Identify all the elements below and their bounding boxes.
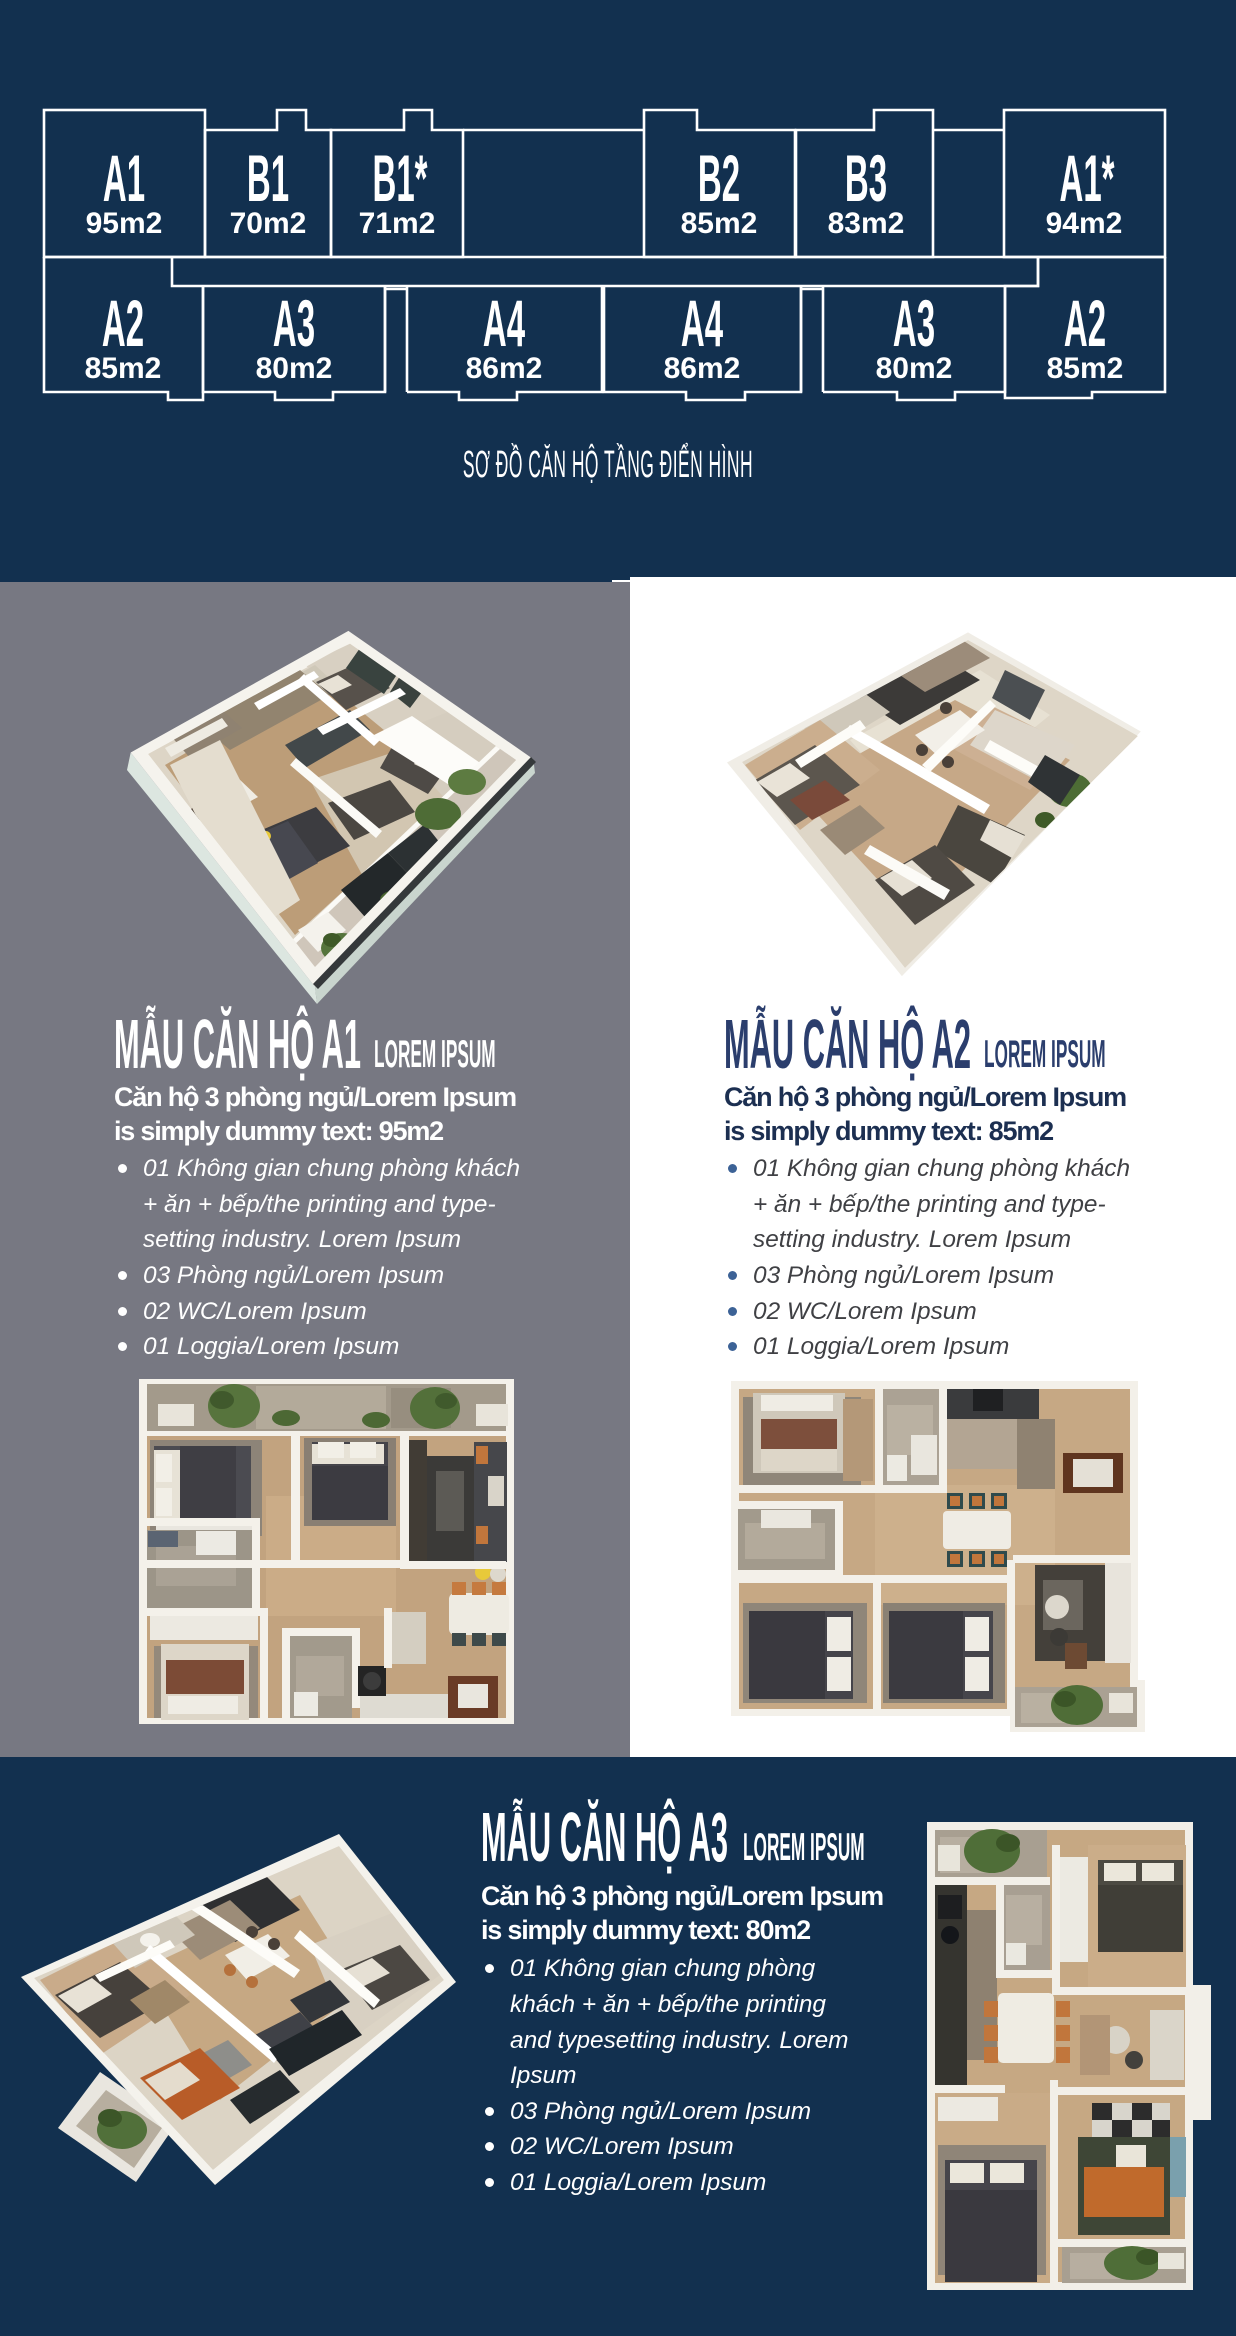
svg-text:SƠ ĐỒ CĂN HỘ TẦNG ĐIỂN HÌNH: SƠ ĐỒ CĂN HỘ TẦNG ĐIỂN HÌNH <box>463 442 753 486</box>
svg-text:85m2: 85m2 <box>1047 352 1124 385</box>
svg-text:A1*: A1* <box>1059 143 1114 216</box>
svg-text:A4: A4 <box>483 288 525 361</box>
svg-text:A4: A4 <box>681 288 723 361</box>
svg-text:80m2: 80m2 <box>876 352 953 385</box>
svg-text:A1: A1 <box>103 143 145 216</box>
svg-text:B1*: B1* <box>372 143 427 216</box>
svg-text:A3: A3 <box>273 288 315 361</box>
svg-text:85m2: 85m2 <box>85 352 162 385</box>
svg-text:94m2: 94m2 <box>1046 207 1123 240</box>
svg-text:A3: A3 <box>893 288 935 361</box>
svg-text:95m2: 95m2 <box>86 207 163 240</box>
svg-text:86m2: 86m2 <box>664 352 741 385</box>
svg-text:86m2: 86m2 <box>466 352 543 385</box>
svg-text:B2: B2 <box>698 143 740 216</box>
svg-text:B3: B3 <box>845 143 887 216</box>
svg-text:B1: B1 <box>247 143 289 216</box>
svg-text:70m2: 70m2 <box>230 207 307 240</box>
svg-text:A2: A2 <box>1064 288 1106 361</box>
svg-text:85m2: 85m2 <box>681 207 758 240</box>
svg-text:A2: A2 <box>102 288 144 361</box>
svg-text:80m2: 80m2 <box>256 352 333 385</box>
svg-text:83m2: 83m2 <box>828 207 905 240</box>
svg-text:71m2: 71m2 <box>359 207 436 240</box>
